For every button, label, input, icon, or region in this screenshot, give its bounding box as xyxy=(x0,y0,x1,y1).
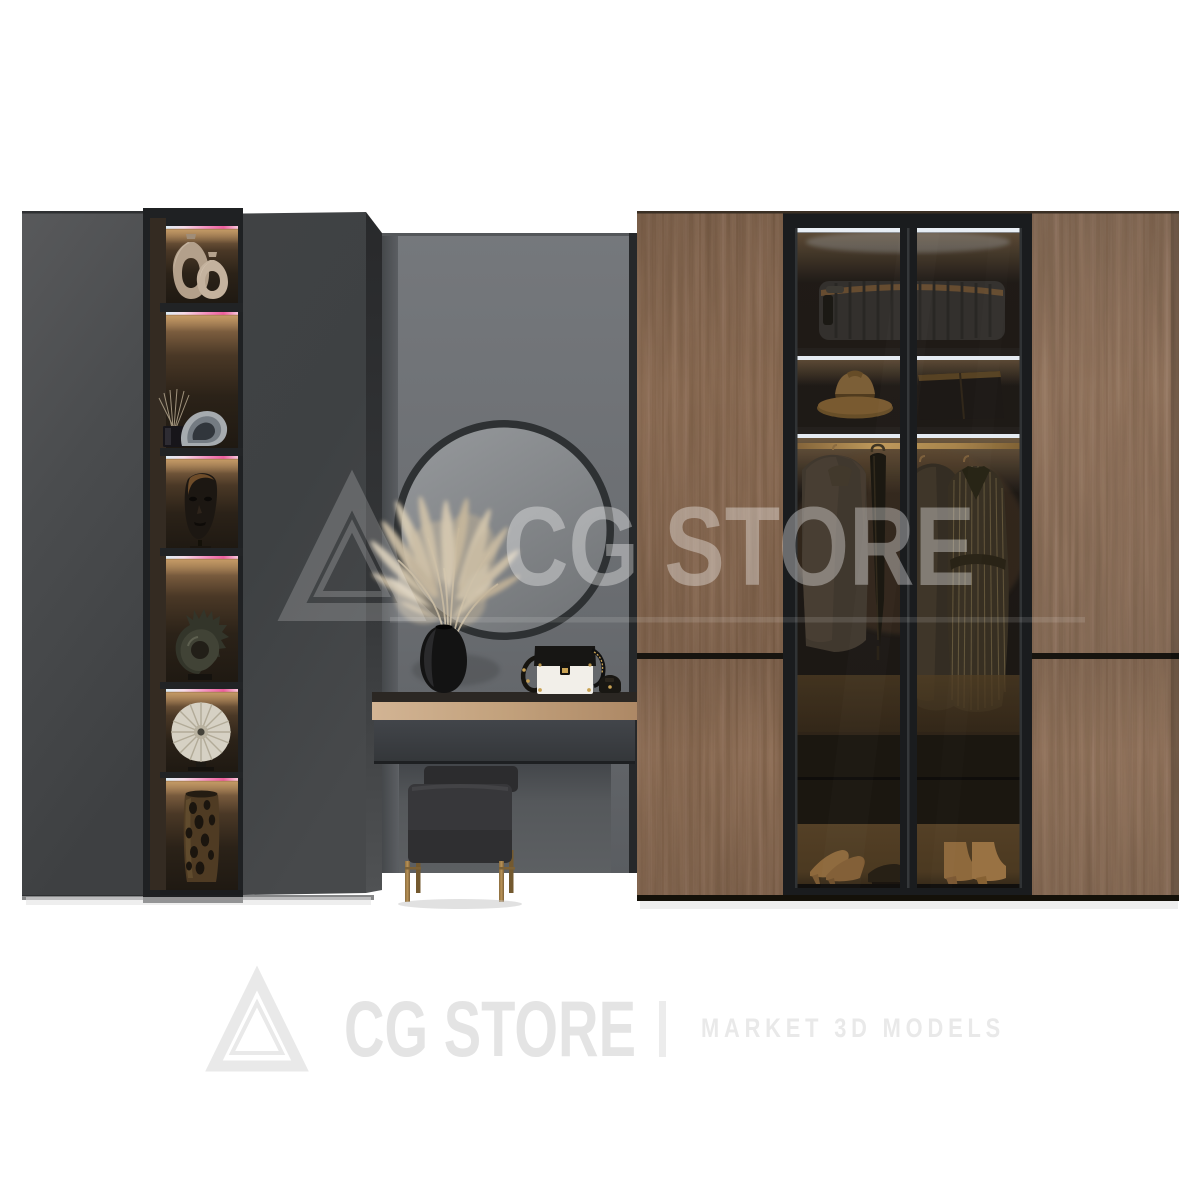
svg-text:CG STORE: CG STORE xyxy=(503,484,975,609)
svg-text:CG STORE: CG STORE xyxy=(344,984,636,1073)
svg-text:MARKET 3D MODELS: MARKET 3D MODELS xyxy=(701,1013,1005,1043)
